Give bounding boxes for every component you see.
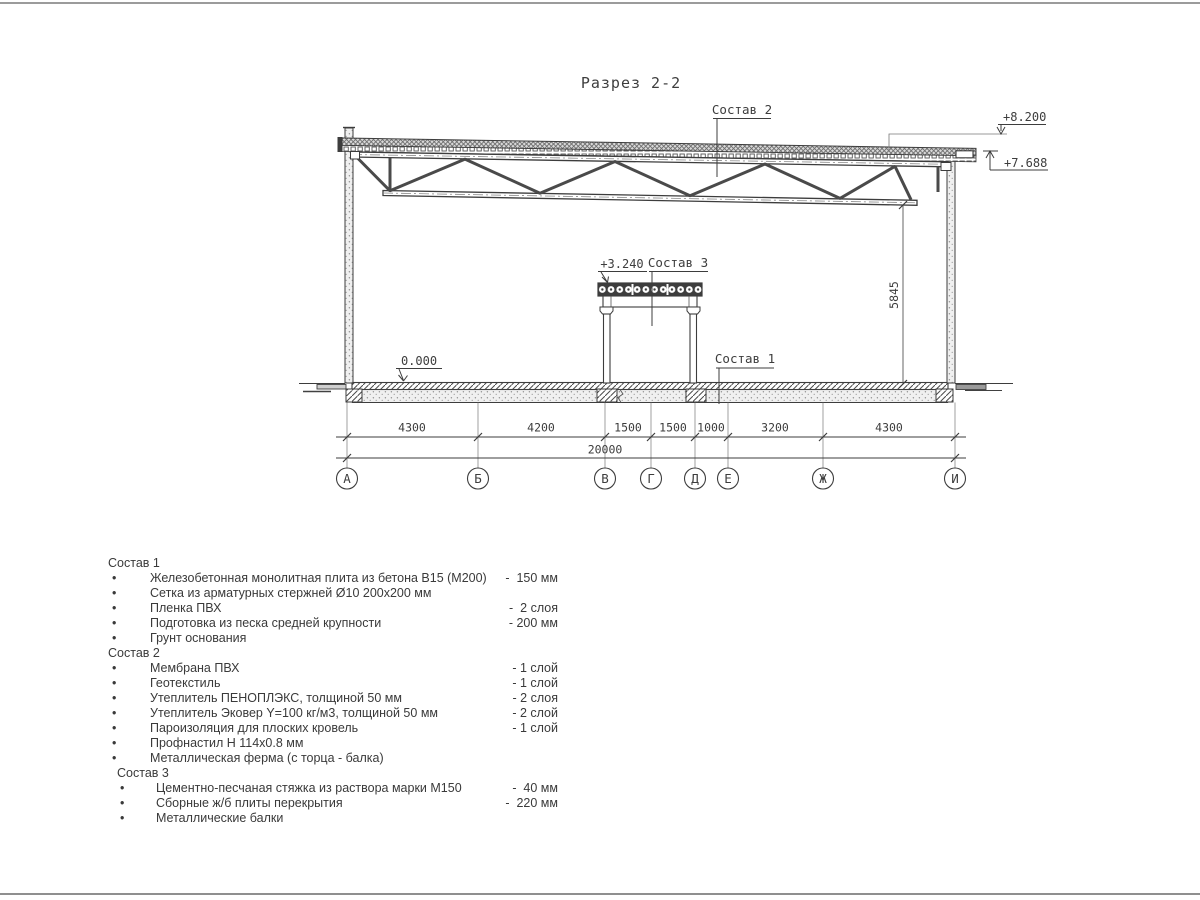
bullet: • <box>112 751 150 766</box>
elevation-truss-bearing: +7.688 <box>1004 156 1047 170</box>
legend-item-name: Сетка из арматурных стержней Ø10 200х200… <box>150 586 558 601</box>
materials-legend: Состав 1 •Железобетонная монолитная плит… <box>0 556 558 826</box>
legend-section-2: Состав 2 •Мембрана ПВХ- 1 слой •Геотекст… <box>0 646 558 766</box>
axis-label: Е <box>724 471 732 486</box>
legend-item: •Сетка из арматурных стержней Ø10 200х20… <box>0 586 558 601</box>
legend-item-name: Пленка ПВХ <box>150 601 509 616</box>
legend-item-value: - 1 слой <box>512 721 558 736</box>
legend-item: •Утеплитель Эковер Y=100 кг/м3, толщиной… <box>0 706 558 721</box>
right-wall <box>947 158 955 383</box>
truss-right-bearing <box>941 163 951 171</box>
height-dimension: 5845 <box>887 201 907 388</box>
bullet: • <box>112 691 150 706</box>
mezzanine-beam <box>603 296 697 307</box>
bullet: • <box>112 631 150 646</box>
axis-label: И <box>951 471 959 486</box>
legend-item-value: - 150 мм <box>505 571 558 586</box>
roof-left-edge-plate <box>338 137 343 152</box>
legend-item: •Сборные ж/б плиты перекрытия- 220 мм <box>0 796 558 811</box>
legend-item: •Мембрана ПВХ- 1 слой <box>0 661 558 676</box>
hollow-core-slab <box>598 283 702 296</box>
legend-item-value: - 2 слой <box>512 706 558 721</box>
bullet: • <box>112 586 150 601</box>
roof-right-flashing <box>956 151 973 158</box>
column-capital <box>687 307 700 314</box>
legend-item: •Металлическая ферма (с торца - балка) <box>0 751 558 766</box>
legend-item-value: - 1 слой <box>512 676 558 691</box>
legend-item: •Пароизоляция для плоских кровель- 1 сло… <box>0 721 558 736</box>
elevation-mezzanine: +3.240 <box>600 257 643 271</box>
legend-item-name: Мембрана ПВХ <box>150 661 512 676</box>
legend-item-name: Пароизоляция для плоских кровель <box>150 721 512 736</box>
column-left <box>604 314 611 383</box>
dim-value: 1500 <box>614 421 642 435</box>
legend-item-name: Сборные ж/б плиты перекрытия <box>156 796 505 811</box>
legend-item-name: Металлическая ферма (с торца - балка) <box>150 751 558 766</box>
dimension-chain: 4300 4200 1500 1500 1000 3200 4300 20000 <box>336 403 966 469</box>
legend-item-name: Утеплитель ПЕНОПЛЭКС, толщиной 50 мм <box>150 691 513 706</box>
dim-value: 4200 <box>527 421 555 435</box>
bullet: • <box>120 781 156 796</box>
legend-item-value: - 220 мм <box>505 796 558 811</box>
legend-item-value: - 1 слой <box>512 661 558 676</box>
truss-left-bearing <box>351 152 360 160</box>
drawing-sheet: Разрез 2-2 <box>0 0 1200 900</box>
legend-item-name: Подготовка из песка средней крупности <box>150 616 509 631</box>
dim-value: 1500 <box>659 421 687 435</box>
legend-item-name: Утеплитель Эковер Y=100 кг/м3, толщиной … <box>150 706 512 721</box>
axis-label: Г <box>647 471 655 486</box>
legend-item: •Металлические балки <box>0 811 558 826</box>
callout-sostav2: Состав 2 <box>712 102 772 117</box>
sheet-bottom-edge <box>0 893 1200 895</box>
legend-item: •Подготовка из песка средней крупности- … <box>0 616 558 631</box>
dim-value: 4300 <box>398 421 426 435</box>
legend-item: •Профнастил Н 114х0.8 мм <box>0 736 558 751</box>
height-dim-value: 5845 <box>887 281 901 309</box>
legend-item: •Железобетонная монолитная плита из бето… <box>0 571 558 586</box>
dim-value: 1000 <box>697 421 725 435</box>
legend-item-value: - 40 мм <box>512 781 558 796</box>
bullet: • <box>112 661 150 676</box>
legend-item: •Утеплитель ПЕНОПЛЭКС, толщиной 50 мм- 2… <box>0 691 558 706</box>
axis-label: Ж <box>819 471 827 486</box>
legend-item: •Геотекстиль- 1 слой <box>0 676 558 691</box>
column-right <box>690 314 697 383</box>
left-wall <box>345 128 353 383</box>
legend-item-value: - 2 слоя <box>509 601 558 616</box>
elevation-floor: 0.000 <box>401 354 437 368</box>
bullet: • <box>120 796 156 811</box>
section-drawing: Разрез 2-2 <box>0 0 1200 540</box>
floor-slab <box>352 383 948 403</box>
bullet: • <box>120 811 156 826</box>
axis-label: А <box>343 471 351 486</box>
legend-item-value: - 200 мм <box>509 616 558 631</box>
legend-section-3: Состав 3 •Цементно-песчаная стяжка из ра… <box>0 766 558 826</box>
legend-item-name: Геотекстиль <box>150 676 512 691</box>
legend-item-name: Грунт основания <box>150 631 558 646</box>
legend-section-header: Состав 1 <box>0 556 558 571</box>
dim-value: 3200 <box>761 421 789 435</box>
dim-total-value: 20000 <box>588 443 623 457</box>
legend-section-header: Состав 2 <box>0 646 558 661</box>
callout-sostav3: Состав 3 <box>648 255 708 270</box>
legend-item-value: - 2 слоя <box>513 691 558 706</box>
legend-section-header: Состав 3 <box>0 766 558 781</box>
legend-item-name: Профнастил Н 114х0.8 мм <box>150 736 558 751</box>
legend-item-name: Железобетонная монолитная плита из бетон… <box>150 571 505 586</box>
bullet: • <box>112 676 150 691</box>
legend-item-name: Цементно-песчаная стяжка из раствора мар… <box>156 781 512 796</box>
legend-item: •Пленка ПВХ- 2 слоя <box>0 601 558 616</box>
bullet: • <box>112 706 150 721</box>
drawing-title: Разрез 2-2 <box>581 74 681 92</box>
bullet: • <box>112 736 150 751</box>
legend-item: •Цементно-песчаная стяжка из раствора ма… <box>0 781 558 796</box>
callout-sostav1: Состав 1 <box>715 351 775 366</box>
legend-item: •Грунт основания <box>0 631 558 646</box>
axis-label: Б <box>474 471 482 486</box>
bullet: • <box>112 601 150 616</box>
bullet: • <box>112 721 150 736</box>
mezzanine <box>598 283 702 383</box>
dim-value: 4300 <box>875 421 903 435</box>
legend-item-name: Металлические балки <box>156 811 558 826</box>
axis-bubbles: А Б В Г Д Е Ж И <box>337 468 966 489</box>
axis-label: Д <box>691 471 699 486</box>
axis-label: В <box>601 471 609 486</box>
legend-section-1: Состав 1 •Железобетонная монолитная плит… <box>0 556 558 646</box>
bullet: • <box>112 571 150 586</box>
bullet: • <box>112 616 150 631</box>
column-capital <box>600 307 613 314</box>
elevation-roof-top: +8.200 <box>1003 110 1046 124</box>
